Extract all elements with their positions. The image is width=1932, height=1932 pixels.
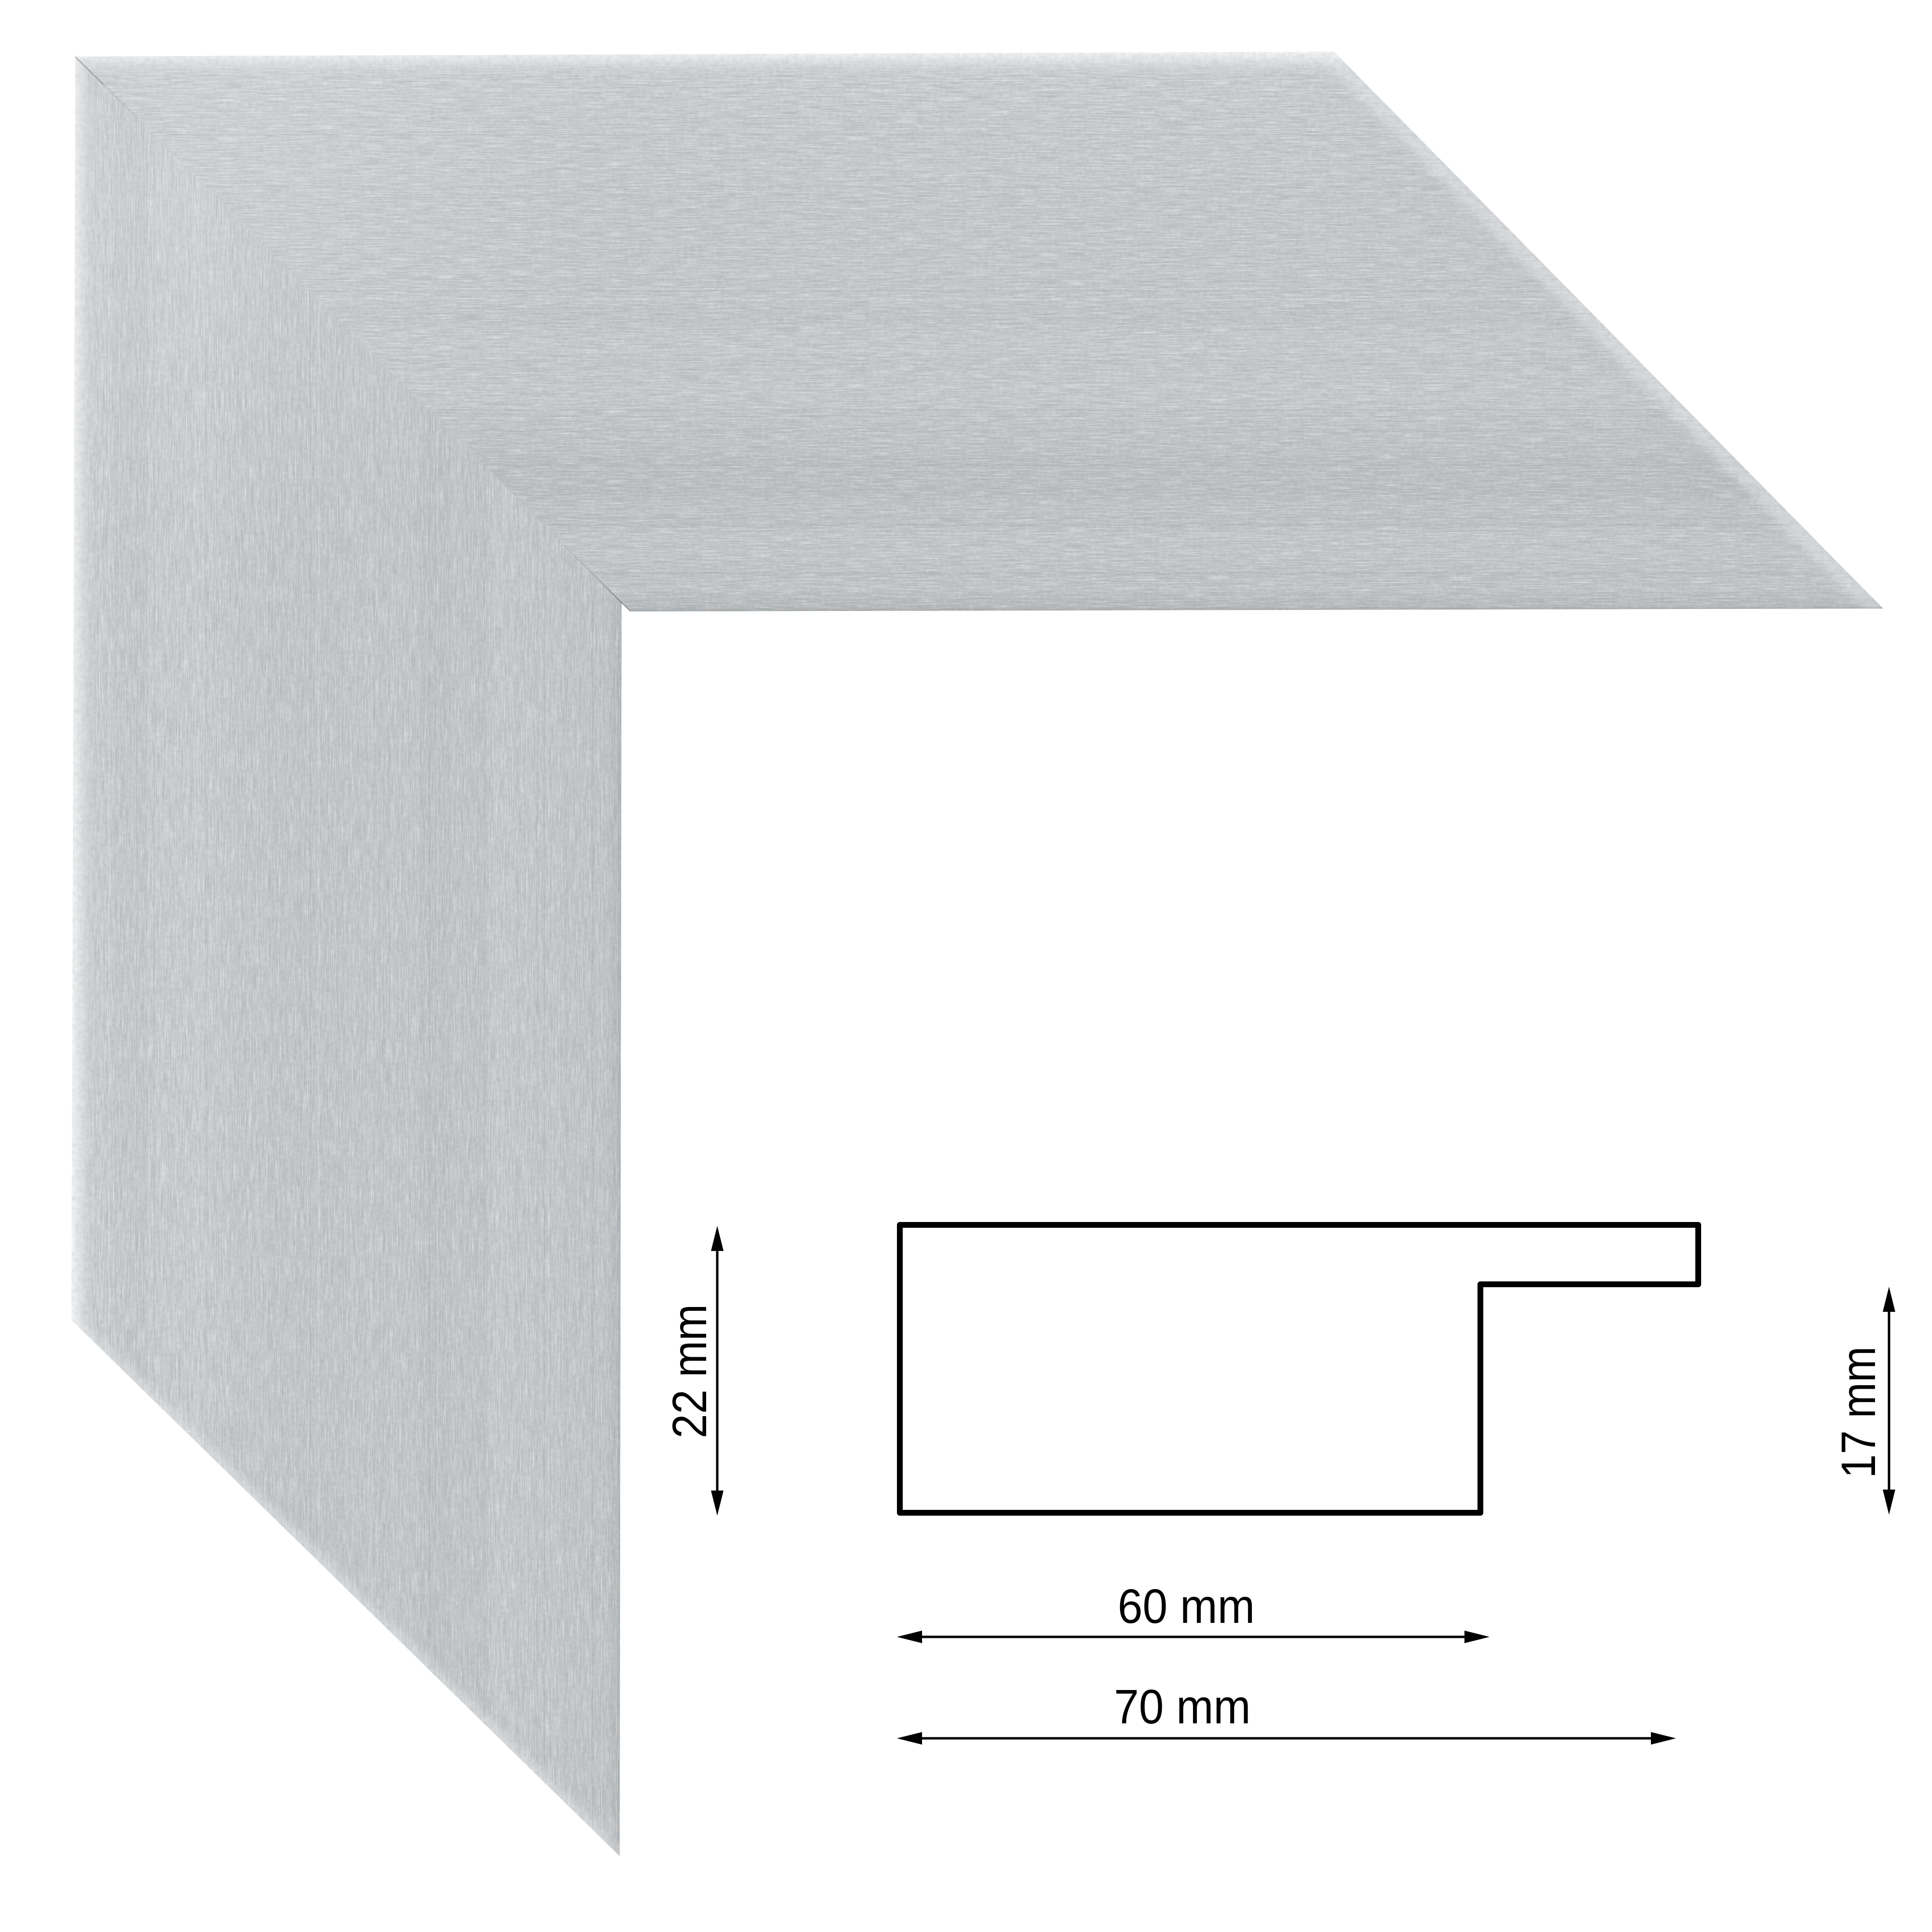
svg-text:60 mm: 60 mm <box>1118 1579 1255 1634</box>
svg-text:70 mm: 70 mm <box>1114 1680 1251 1734</box>
svg-text:17 mm: 17 mm <box>1832 1347 1886 1478</box>
svg-text:22 mm: 22 mm <box>663 1304 717 1438</box>
